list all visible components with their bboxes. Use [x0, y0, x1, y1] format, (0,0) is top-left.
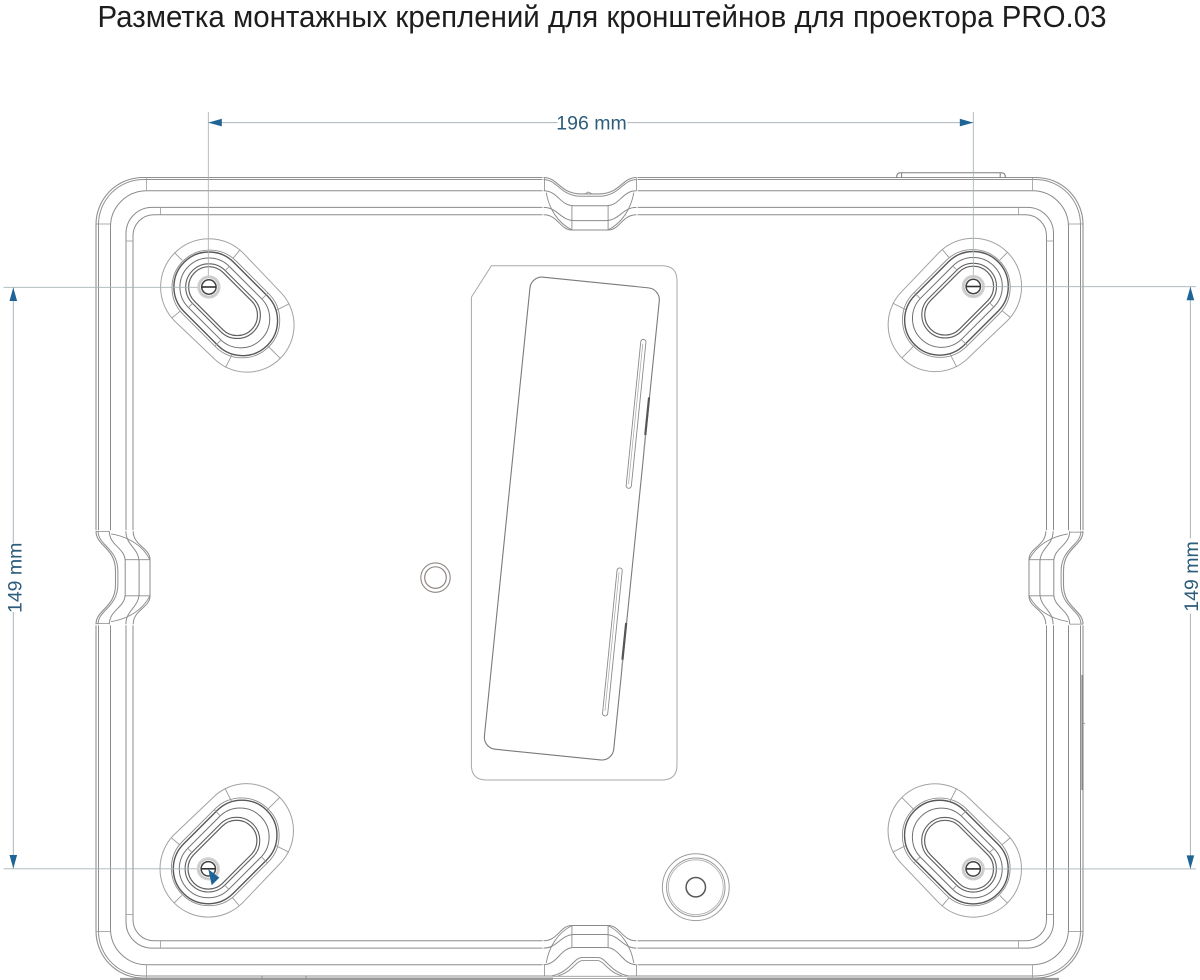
- svg-text:Разметка монтажных креплений д: Разметка монтажных креплений для кронште…: [98, 0, 1107, 34]
- svg-text:196 mm: 196 mm: [556, 113, 626, 135]
- svg-text:149 mm: 149 mm: [4, 543, 26, 613]
- svg-text:149 mm: 149 mm: [1181, 541, 1200, 611]
